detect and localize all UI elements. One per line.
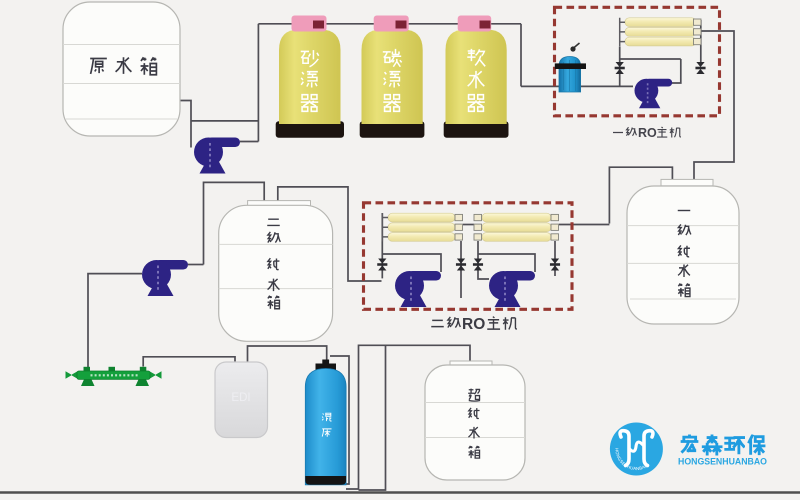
svg-text:RO: RO (638, 126, 657, 140)
svg-text:RO: RO (462, 316, 485, 333)
svg-text:EDI: EDI (231, 392, 250, 404)
svg-text:HONGSENHUANBAO: HONGSENHUANBAO (678, 457, 767, 468)
